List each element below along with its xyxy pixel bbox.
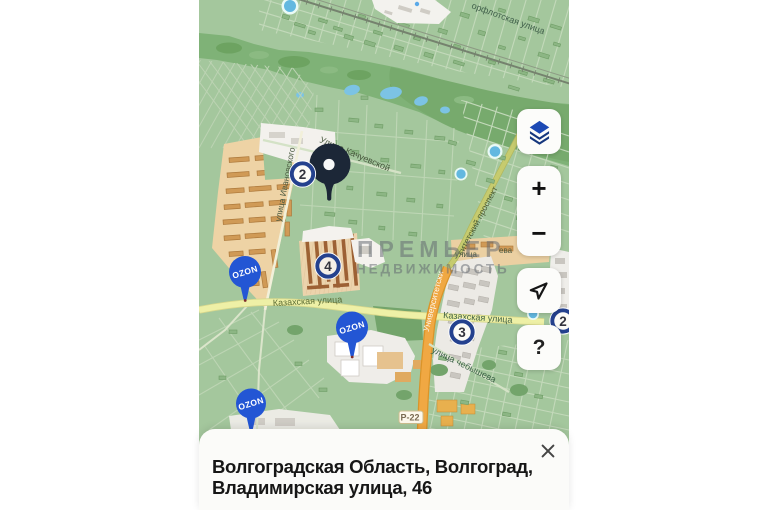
svg-text:3: 3 <box>458 325 466 340</box>
svg-text:Р-22: Р-22 <box>400 413 419 423</box>
svg-text:4: 4 <box>324 259 332 274</box>
svg-text:ПРЕМЬЕР: ПРЕМЬЕР <box>357 236 506 262</box>
svg-text:2: 2 <box>559 314 567 329</box>
svg-text:НЕДВИЖИМОСТЬ: НЕДВИЖИМОСТЬ <box>356 262 510 277</box>
svg-text:2: 2 <box>299 167 307 182</box>
